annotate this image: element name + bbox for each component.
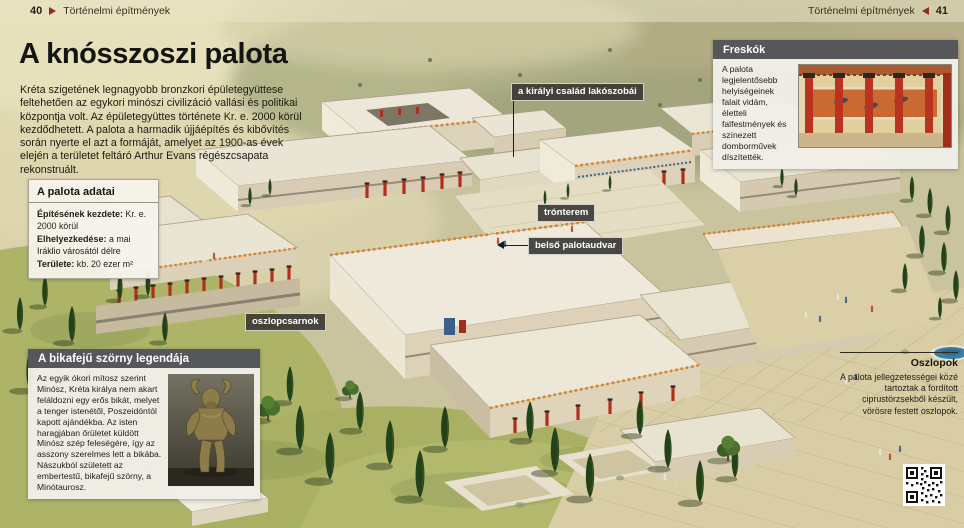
- data-row: Területe: kb. 20 ezer m²: [37, 259, 150, 271]
- frescoes-box-title: Freskók: [713, 40, 958, 59]
- palace-data-title: A palota adatai: [29, 180, 158, 203]
- data-row: Építésének kezdete: Kr. e. 2000 körül: [37, 209, 150, 232]
- intro-paragraph: Kréta szigetének legnagyobb bronzkori ép…: [20, 84, 305, 177]
- leader-line: [504, 245, 528, 246]
- arrow-right-icon: [49, 7, 56, 15]
- leader-line: [513, 101, 514, 157]
- map-label-throne-room: trónterem: [537, 204, 595, 222]
- qr-code: [903, 464, 945, 506]
- section-title-right: Történelmi építmények: [808, 5, 915, 17]
- map-label-colonnade: oszlopcsarnok: [245, 313, 326, 331]
- data-row-value: kb. 20 ezer m²: [77, 259, 133, 269]
- frescoes-box-body: A palota legjelentősebb helyiségeinek fa…: [713, 59, 958, 169]
- page-number-right: 41: [936, 5, 948, 17]
- frescoes-box: Freskók A palota legjelentősebb helyiség…: [713, 40, 958, 169]
- columns-note-text: A palota jellegzetességei közé tartoztak…: [840, 372, 958, 417]
- arrow-left-icon: [922, 7, 929, 15]
- data-row: Elhelyezkedése: a mai Iráklio városától …: [37, 234, 150, 257]
- frescoes-text: A palota legjelentősebb helyiségeinek fa…: [722, 64, 798, 163]
- map-label-inner-courtyard: belső palotaudvar: [528, 237, 623, 255]
- page-title: A knósszoszi palota: [19, 38, 288, 71]
- columns-note-title: Oszlopok: [840, 352, 958, 369]
- section-title-left: Történelmi építmények: [63, 5, 170, 17]
- columns-note: Oszlopok A palota jellegzetességei közé …: [840, 352, 958, 417]
- data-row-label: Építésének kezdete:: [37, 209, 123, 219]
- data-row-label: Elhelyezkedése:: [37, 234, 107, 244]
- minotaur-legend-body: Az egyik ókori mítosz szerint Minósz, Kr…: [28, 368, 260, 499]
- minotaur-legend-box: A bikafejű szörny legendája Az egyik óko…: [28, 349, 260, 499]
- data-row-label: Területe:: [37, 259, 74, 269]
- minotaur-legend-title: A bikafejű szörny legendája: [28, 349, 260, 368]
- minotaur-legend-text: Az egyik ókori mítosz szerint Minósz, Kr…: [37, 373, 168, 493]
- leader-arrowhead: [497, 241, 504, 249]
- map-label-royal-quarters: a királyi család lakószobái: [511, 83, 644, 101]
- fresco-image: [798, 64, 952, 148]
- palace-data-box: A palota adatai Építésének kezdete: Kr. …: [28, 179, 159, 279]
- page-number-left: 40: [30, 5, 42, 17]
- header-right: Történelmi építmények 41: [808, 5, 948, 17]
- book-page-spread: { "header": { "left_page_number": "40", …: [0, 0, 964, 528]
- page-header: 40 Történelmi építmények Történelmi épít…: [0, 0, 964, 22]
- palace-data-rows: Építésének kezdete: Kr. e. 2000 körül El…: [29, 203, 158, 278]
- header-left: 40 Történelmi építmények: [30, 5, 170, 17]
- minotaur-image: [168, 374, 254, 486]
